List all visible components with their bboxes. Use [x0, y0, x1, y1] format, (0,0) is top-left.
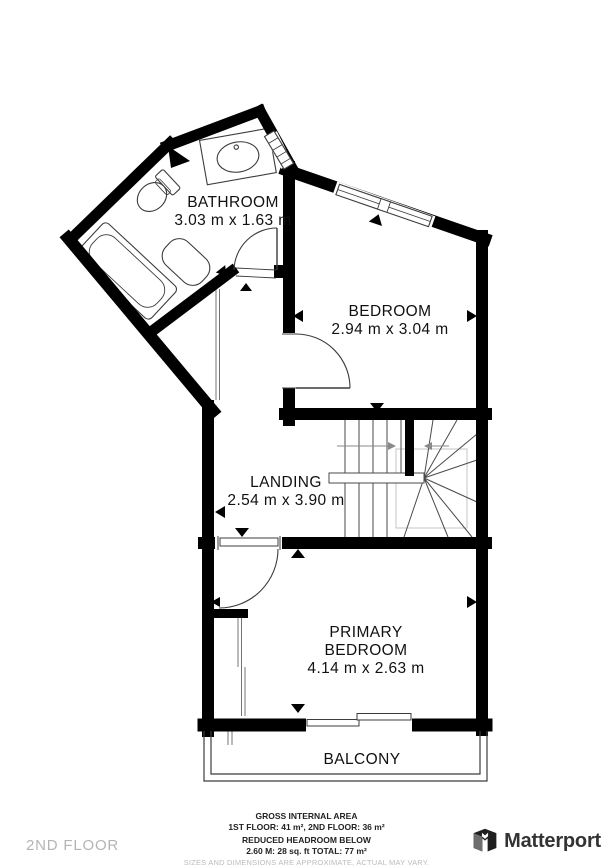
floor-label: 2ND FLOOR	[26, 837, 119, 854]
marker-balcony-door	[291, 704, 305, 713]
floorplan-page: BATHROOM 3.03 m x 1.63 m BEDROOM 2.94 m …	[0, 0, 613, 867]
wall-stair-divider	[405, 420, 414, 476]
marker-primary-door-bottom	[291, 549, 305, 558]
marker-primary-right	[467, 596, 477, 608]
primary-door-leaf	[220, 538, 278, 546]
bathroom-dims: 3.03 m x 1.63 m	[174, 212, 291, 229]
door-gap-bedroom	[282, 333, 296, 388]
disclaimer-text: SIZES AND DIMENSIONS ARE APPROXIMATE, AC…	[0, 858, 613, 867]
matterport-icon	[471, 827, 499, 855]
matterport-wordmark: Matterport	[504, 830, 601, 853]
primary-door-arc	[219, 549, 278, 608]
wall-pier-wedge	[168, 146, 190, 168]
matterport-logo: Matterport	[471, 827, 601, 855]
marker-bedroom-right	[467, 310, 477, 322]
sliding-door-panel-left	[307, 720, 359, 727]
bathroom-label: BATHROOM	[187, 194, 279, 211]
marker-bathroom-door-b	[240, 283, 252, 291]
marker-bedroom-window	[369, 212, 385, 226]
landing-label: LANDING	[250, 474, 322, 491]
floorplan-drawing: BATHROOM 3.03 m x 1.63 m BEDROOM 2.94 m …	[0, 0, 613, 867]
stair-treads-lower	[345, 483, 387, 537]
bedroom-dims: 2.94 m x 3.04 m	[331, 321, 448, 338]
wall-primary-stub	[212, 609, 248, 618]
bedroom-label: BEDROOM	[349, 303, 432, 320]
primary-bedroom-label-2: BEDROOM	[325, 642, 408, 659]
staircase	[329, 420, 477, 537]
bedroom-door-arc	[296, 334, 350, 388]
bedroom-window	[336, 184, 432, 226]
primary-bedroom-label-1: PRIMARY	[329, 624, 402, 641]
gross-area-title: GROSS INTERNAL AREA	[0, 811, 613, 822]
landing-dims: 2.54 m x 3.90 m	[227, 492, 344, 509]
reduced-headroom-lines	[216, 289, 245, 745]
primary-bedroom-dims: 4.14 m x 2.63 m	[307, 660, 424, 677]
balcony-label: BALCONY	[324, 751, 401, 768]
sliding-door-panel-right	[357, 714, 411, 721]
marker-primary-door-top	[235, 528, 249, 537]
marker-landing-left	[215, 506, 225, 518]
bathroom-door-arc	[234, 228, 277, 270]
